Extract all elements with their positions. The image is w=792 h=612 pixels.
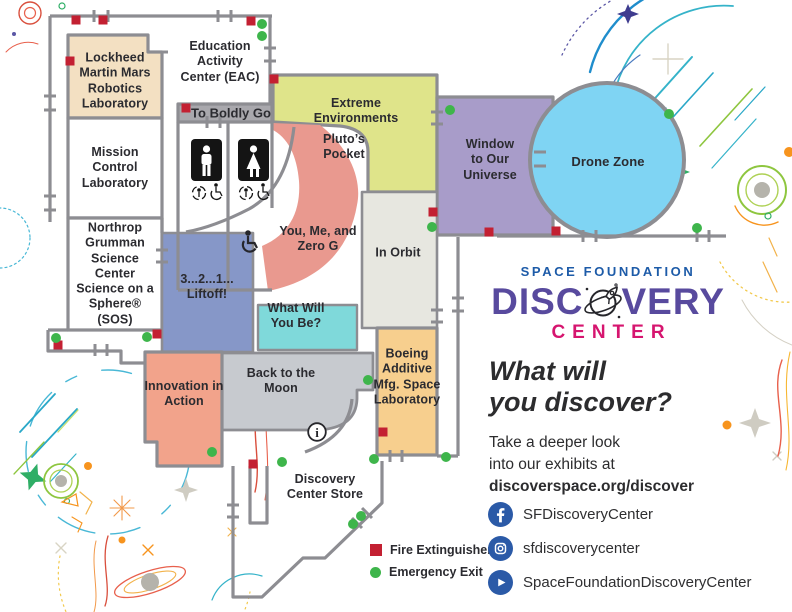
emergency-exit-marker <box>692 223 702 233</box>
discovery-center-map-page: i Lockheed Martin Mars Robotics La <box>0 0 792 612</box>
room-drone-zone <box>530 83 684 237</box>
decorative-doodles-top-left <box>6 2 65 52</box>
baby-changing-icon <box>193 187 206 200</box>
fire-extinguisher-marker <box>66 57 75 66</box>
emergency-exit-marker <box>51 333 61 343</box>
cta-text: Take a deeper look into our exhibits at … <box>489 432 694 498</box>
room-what-will-you-be <box>258 305 357 350</box>
planet-rocket-icon <box>583 281 623 323</box>
room-in-orbit <box>362 192 437 328</box>
room-mission-control <box>68 118 162 218</box>
fire-extinguisher-marker <box>429 208 438 217</box>
legend-exit-label: Emergency Exit <box>389 565 483 579</box>
legend-emergency-exit: Emergency Exit <box>370 565 483 579</box>
discovery-logo-right: VERY <box>622 281 725 323</box>
wheelchair-accessible-icon <box>211 183 222 199</box>
emergency-exit-marker <box>363 375 373 385</box>
room-northrop-sos <box>68 218 162 330</box>
youtube-icon <box>488 570 513 595</box>
room-lockheed <box>68 35 162 118</box>
restroom-signs <box>191 139 269 200</box>
space-foundation-wordmark: SPACE FOUNDATION <box>467 264 749 279</box>
discovery-logo: DISC VERY <box>467 281 749 323</box>
wall-store-vestibule <box>250 466 267 523</box>
room-you-me-zero-g <box>262 123 358 291</box>
emergency-exit-marker <box>445 105 455 115</box>
emergency-exit-marker <box>369 454 379 464</box>
emergency-exit-marker <box>427 222 437 232</box>
social-instagram[interactable]: sfdiscoverycenter <box>488 536 640 561</box>
emergency-exit-marker <box>277 457 287 467</box>
emergency-exit-icon <box>370 567 381 578</box>
emergency-exit-marker <box>257 31 267 41</box>
fire-extinguisher-marker <box>485 228 494 237</box>
fire-extinguisher-marker <box>247 17 256 26</box>
emergency-exit-marker <box>664 109 674 119</box>
youtube-handle: SpaceFoundationDiscoveryCenter <box>523 574 751 591</box>
room-liftoff <box>162 233 253 352</box>
instagram-icon <box>488 536 513 561</box>
social-facebook[interactable]: SFDiscoveryCenter <box>488 502 653 527</box>
fire-extinguisher-icon <box>370 544 382 556</box>
facebook-handle: SFDiscoveryCenter <box>523 506 653 523</box>
fire-extinguisher-marker <box>270 75 279 84</box>
cta-line-2: into our exhibits at <box>489 454 694 476</box>
emergency-exit-marker <box>348 519 358 529</box>
wall-store-outline <box>233 461 382 597</box>
emergency-exit-marker <box>257 19 267 29</box>
center-wordmark: CENTER <box>467 322 749 344</box>
fire-extinguisher-marker <box>153 330 162 339</box>
emergency-exit-marker <box>142 332 152 342</box>
discovery-logo-left: DISC <box>491 281 583 323</box>
fire-extinguisher-marker <box>99 16 108 25</box>
fire-extinguisher-marker <box>182 104 191 113</box>
baby-changing-icon <box>240 187 253 200</box>
fire-extinguisher-marker <box>249 460 258 469</box>
legend-fire-extinguisher: Fire Extinguisher <box>370 543 492 557</box>
facebook-icon <box>488 502 513 527</box>
fire-extinguisher-marker <box>552 227 561 236</box>
room-label-to-boldly-go: To Boldly Go <box>191 106 271 121</box>
emergency-exit-marker <box>441 452 451 462</box>
room-back-to-moon <box>220 353 373 430</box>
discover-link[interactable]: discoverspace.org/discover <box>489 476 694 498</box>
fire-extinguisher-marker <box>72 16 81 25</box>
cta-line-1: Take a deeper look <box>489 432 694 454</box>
social-youtube[interactable]: SpaceFoundationDiscoveryCenter <box>488 570 751 595</box>
emergency-exit-marker <box>207 447 217 457</box>
tagline: What will you discover? <box>489 356 672 417</box>
svg-text:i: i <box>315 425 319 440</box>
fire-extinguisher-marker <box>379 428 388 437</box>
legend-fire-label: Fire Extinguisher <box>390 543 492 557</box>
info-icon: i <box>308 423 326 441</box>
emergency-exit-marker <box>356 511 366 521</box>
instagram-handle: sfdiscoverycenter <box>523 540 640 557</box>
wall-logo-boundary <box>437 237 458 456</box>
